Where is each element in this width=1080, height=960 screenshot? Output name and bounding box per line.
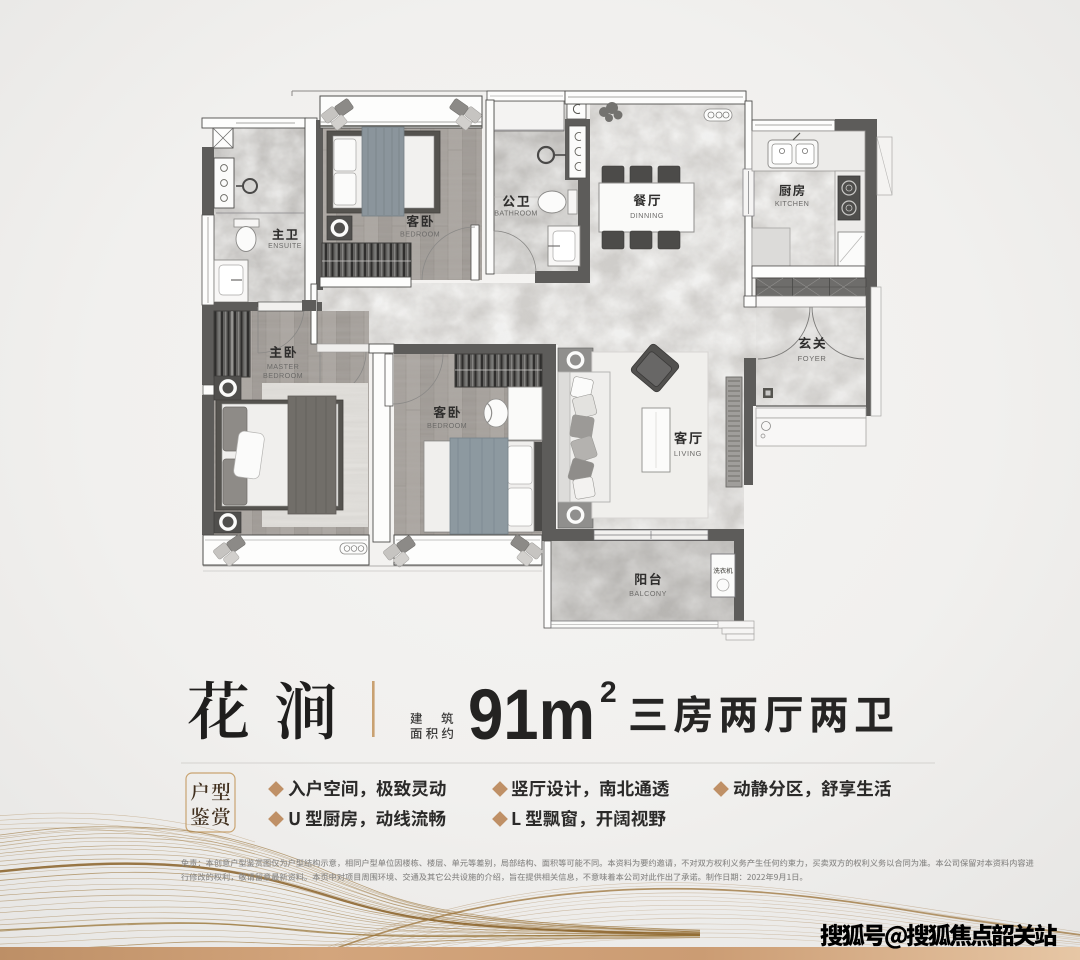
- svg-text:91m: 91m: [468, 676, 595, 755]
- svg-text:BATHROOM: BATHROOM: [494, 209, 537, 218]
- svg-text:BEDROOM: BEDROOM: [263, 371, 303, 380]
- svg-text:ENSUITE: ENSUITE: [268, 243, 302, 250]
- svg-text:DINNING: DINNING: [630, 211, 664, 220]
- svg-text:BALCONY: BALCONY: [629, 589, 667, 598]
- svg-text:BEDROOM: BEDROOM: [400, 230, 440, 239]
- svg-text:MASTER: MASTER: [267, 362, 299, 371]
- svg-text:KITCHEN: KITCHEN: [775, 199, 809, 208]
- svg-text:LIVING: LIVING: [674, 449, 702, 458]
- svg-text:BEDROOM: BEDROOM: [427, 421, 467, 430]
- svg-text:FOYER: FOYER: [798, 354, 827, 363]
- svg-text:2: 2: [600, 676, 617, 709]
